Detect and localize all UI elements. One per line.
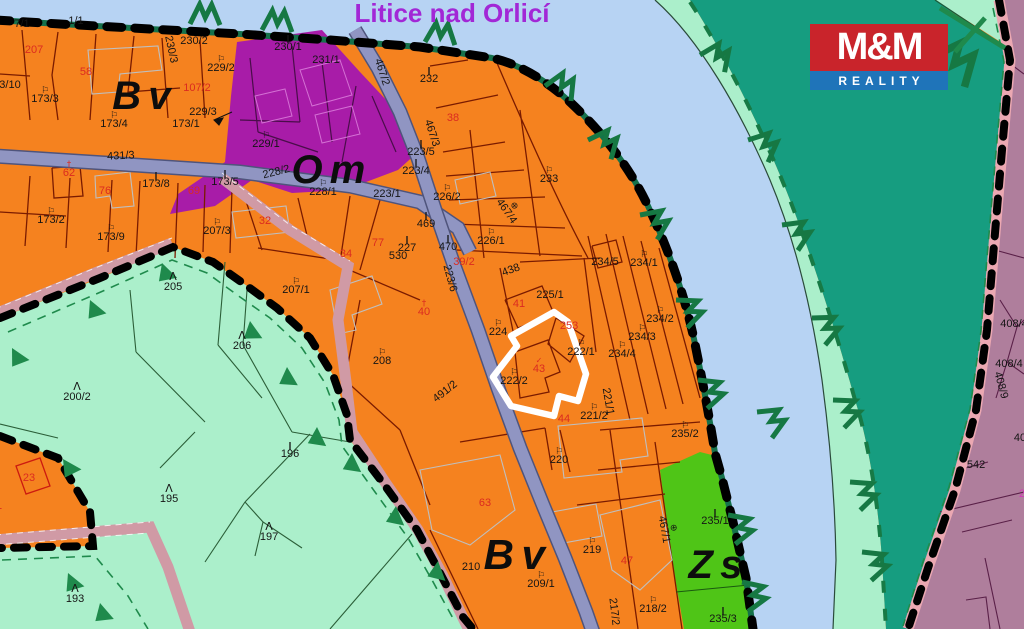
svg-text:21: 21 (0, 500, 2, 512)
parcel-label: 39/2 (453, 256, 474, 268)
parcel-label: 1/1 (68, 15, 83, 27)
svg-text:32: 32 (259, 215, 271, 227)
svg-text:40: 40 (1014, 432, 1024, 444)
landuse-icon: ⚐ (494, 319, 502, 329)
parcel-label: 69 (188, 185, 200, 197)
parcel-label: 253 (560, 320, 578, 332)
svg-text:173/1: 173/1 (172, 118, 200, 130)
landuse-icon: ⚐ (638, 324, 646, 334)
svg-text:23: 23 (23, 472, 35, 484)
svg-text:530: 530 (389, 250, 407, 262)
parcel-label: 23 (23, 472, 35, 484)
landuse-icon: † (422, 299, 427, 309)
svg-text:76: 76 (99, 185, 111, 197)
landuse-icon: ⚐ (649, 596, 657, 606)
parcel-label: 32 (259, 215, 271, 227)
parcel-label: 47 (621, 555, 633, 567)
landuse-icon: ⚐ (545, 166, 553, 176)
landuse-icon: ⚐ (487, 228, 495, 238)
mm-reality-logo: M&M REALITY (810, 24, 948, 90)
parcel-label: 3/10 (0, 79, 21, 91)
svg-text:38: 38 (447, 112, 459, 124)
parcel-label: 207 (25, 44, 43, 56)
landuse-icon: ⚐ (41, 86, 49, 96)
svg-text:542: 542 (967, 459, 985, 471)
svg-text:408/4: 408/4 (1000, 318, 1024, 330)
landuse-icon: ✓ (536, 356, 543, 365)
svg-text:223/1: 223/1 (373, 188, 401, 200)
parcel-label: 77 (372, 237, 384, 249)
svg-text:2: 2 (1019, 488, 1024, 500)
landuse-icon: ⚐ (443, 184, 451, 194)
tree-icon: Λ (165, 482, 173, 495)
parcel-label: 234/5 (591, 256, 619, 268)
parcel-label: 408/4 (1000, 318, 1024, 330)
parcel-label: 173/1 (172, 118, 200, 130)
svg-text:207: 207 (25, 44, 43, 56)
landuse-icon: ⚐ (618, 341, 626, 351)
landuse-icon: ‖ (154, 171, 158, 180)
parcel-label: 63 (479, 497, 491, 509)
svg-text:107/2: 107/2 (183, 82, 211, 94)
parcel-label: 229/3 (189, 106, 217, 118)
parcel-label: 230/2 (180, 35, 208, 47)
landuse-icon: ‖ (713, 508, 717, 517)
svg-text:1/1: 1/1 (68, 15, 83, 27)
parcel-label: 231/1 (312, 54, 340, 66)
parcel-label: 2 (1019, 488, 1024, 500)
landuse-icon: ⚐ (640, 250, 648, 260)
landuse-icon: ⚐ (588, 537, 596, 547)
landuse-icon: ‖ (405, 235, 409, 244)
parcel-label: 530 (389, 250, 407, 262)
parcel-label: 431/3 (107, 149, 135, 162)
svg-text:431/3: 431/3 (107, 149, 135, 162)
landuse-icon: ⚐ (47, 207, 55, 217)
landuse-icon: ‖ (414, 158, 418, 167)
logo-mm: M&M (810, 24, 948, 71)
landuse-icon: ‖ (223, 169, 227, 178)
landuse-icon: ⚐ (378, 348, 386, 358)
parcel-label: 107/2 (183, 82, 211, 94)
landuse-icon: † (67, 160, 72, 170)
svg-text:34: 34 (340, 248, 352, 260)
parcel-label: 21 (0, 500, 2, 512)
parcel-label: 542 (967, 459, 985, 471)
svg-text:234/5: 234/5 (591, 256, 619, 268)
parcel-label: 7/1 (14, 18, 29, 30)
landuse-icon: ‖ (721, 606, 725, 615)
landuse-icon: ‖ (288, 441, 292, 450)
landuse-icon: ‖ (446, 234, 450, 243)
zone-label: Bv (484, 531, 553, 578)
svg-text:47: 47 (621, 555, 633, 567)
landuse-icon: ⚐ (590, 403, 598, 413)
parcel-label: 223/1 (373, 188, 401, 200)
zone-label: Zs (687, 543, 749, 587)
landuse-icon: ⚐ (577, 339, 585, 349)
landuse-icon: ‖ (424, 211, 428, 220)
landuse-icon: ⚐ (213, 218, 221, 228)
landuse-icon: ⚐ (681, 421, 689, 431)
svg-text:63: 63 (479, 497, 491, 509)
tree-icon: Λ (71, 582, 79, 595)
parcel-label: 34 (340, 248, 352, 260)
map-title: Litice nad Orlicí (354, 0, 550, 28)
cadastral-map: 7/11/120758230/3230/2229/2⚐107/2229/33/1… (0, 0, 1024, 629)
svg-text:229/3: 229/3 (189, 106, 217, 118)
tree-icon: Λ (169, 270, 177, 283)
landuse-icon: ‖ (427, 66, 431, 75)
logo-reality: REALITY (810, 71, 948, 90)
landuse-icon: ⚐ (656, 306, 664, 316)
tree-icon: Λ (265, 520, 273, 533)
svg-text:253: 253 (560, 320, 578, 332)
landuse-icon: ⚐ (292, 277, 300, 287)
parcel-label: 38 (447, 112, 459, 124)
landuse-icon: ⚐ (555, 447, 563, 457)
svg-text:41: 41 (513, 298, 525, 310)
parcel-label: 41 (513, 298, 525, 310)
svg-text:210: 210 (462, 561, 480, 573)
tree-icon: Λ (238, 329, 246, 342)
svg-text:230/2: 230/2 (180, 35, 208, 47)
landuse-icon: ‖ (286, 34, 290, 43)
svg-text:7/1: 7/1 (14, 18, 29, 30)
svg-text:44: 44 (558, 413, 570, 425)
parcel-label: 40 (1014, 432, 1024, 444)
parcel-label: 210 (462, 561, 480, 573)
tree-icon: Λ (73, 380, 81, 393)
landuse-icon: ⚐ (262, 131, 270, 141)
parcel-label: 76 (99, 185, 111, 197)
svg-text:69: 69 (188, 185, 200, 197)
svg-text:231/1: 231/1 (312, 54, 340, 66)
landuse-icon: ‖ (419, 139, 423, 148)
landuse-icon: ⚐ (510, 368, 518, 378)
parcel-label: 225/1 (536, 289, 564, 301)
zone-label: Bv (112, 74, 178, 118)
landuse-icon: ⚐ (107, 224, 115, 234)
parcel-label: 44 (558, 413, 570, 425)
svg-text:58: 58 (80, 66, 92, 78)
parcel-label: 408/4 (995, 358, 1023, 370)
svg-text:39/2: 39/2 (453, 256, 474, 268)
svg-text:408/4: 408/4 (995, 358, 1023, 370)
map-canvas: 7/11/120758230/3230/2229/2⚐107/2229/33/1… (0, 0, 1024, 629)
landuse-icon: ⚐ (217, 55, 225, 65)
zone-label: Om (291, 148, 372, 192)
svg-text:77: 77 (372, 237, 384, 249)
svg-text:225/1: 225/1 (536, 289, 564, 301)
parcel-label: 58 (80, 66, 92, 78)
svg-text:3/10: 3/10 (0, 79, 21, 91)
